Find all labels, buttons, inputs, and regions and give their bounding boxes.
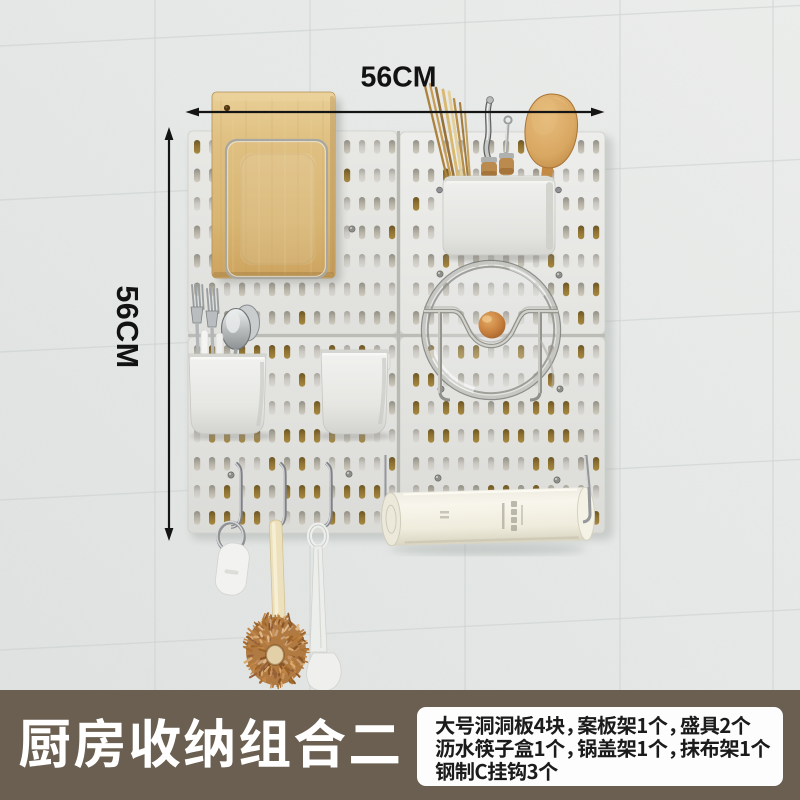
svg-text:56CM: 56CM <box>360 62 436 94</box>
svg-text:56CM: 56CM <box>110 285 144 368</box>
